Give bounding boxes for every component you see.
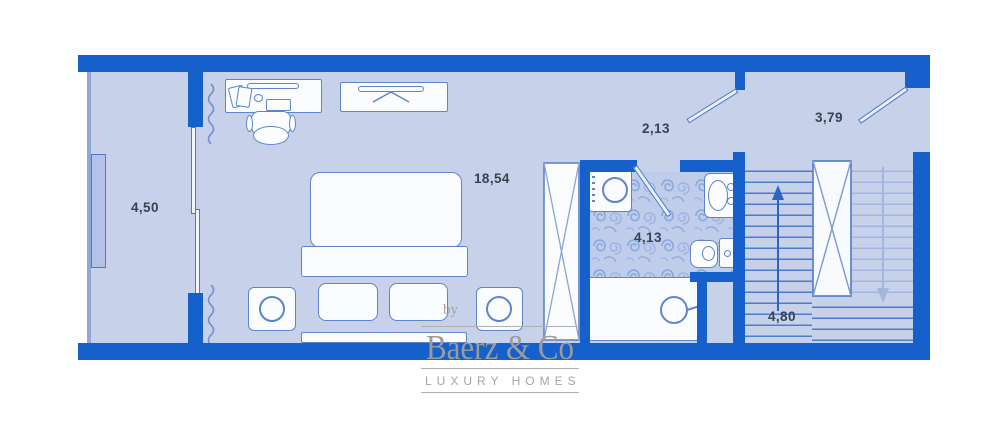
landing-area-label: 3,79	[815, 110, 843, 125]
washing-machine-controls	[592, 176, 595, 204]
washing-machine-door	[602, 177, 628, 203]
desk-chair-seat	[253, 126, 289, 145]
wall-hallway-stub	[735, 72, 745, 90]
stairs-lower-steps	[812, 297, 913, 343]
bed-pillow	[318, 283, 378, 321]
balcony-window	[91, 154, 106, 268]
sliding-door-panel	[191, 127, 196, 214]
curtain-squiggle-icon	[206, 84, 216, 144]
wall-shower-nook	[697, 272, 707, 343]
watermark-tagline: LUXURY HOMES	[421, 371, 579, 390]
wall-bathroom-top-right	[680, 160, 735, 172]
staircase-area-label: 4,80	[768, 309, 796, 324]
wall-right	[913, 152, 930, 343]
wall-bathroom-left	[580, 160, 590, 343]
hallway-area-label: 2,13	[642, 121, 670, 136]
desk-chair-armrest	[246, 115, 253, 132]
toilet-seat	[702, 246, 715, 261]
wall-bathroom-top-left	[580, 160, 637, 172]
entrance-opening-floor	[913, 88, 930, 152]
bed-fold-band	[301, 246, 468, 277]
toilet-button	[724, 250, 731, 257]
sliding-door-panel	[195, 209, 200, 294]
watermark-rule	[421, 392, 579, 393]
desk-chair-armrest	[289, 115, 296, 132]
shower-head-icon	[660, 296, 688, 324]
watermark-brand: Baerz & Co	[421, 327, 579, 369]
stairs-down-arrow-icon	[874, 167, 892, 303]
bedroom-area-label: 18,54	[474, 171, 510, 186]
watermark-by: by	[421, 302, 579, 324]
stair-void-shaft	[812, 160, 852, 297]
bathroom-area-label: 4,13	[634, 230, 662, 245]
stairs-up-arrow-icon	[769, 185, 787, 315]
sink-basin	[708, 180, 728, 211]
wall-entrance-stub	[905, 72, 930, 88]
wall-top	[78, 55, 930, 72]
watermark: by Baerz & Co LUXURY HOMES	[421, 302, 579, 395]
bed-duvet	[310, 172, 462, 248]
wall-balcony-stub-bottom	[188, 293, 203, 343]
wall-bathroom-stairs-divider	[733, 152, 745, 343]
balcony-area-label: 4,50	[131, 200, 159, 215]
desk-mouse	[254, 94, 263, 102]
floor-plan: 4,50 18,54 2,13 3,79 4,13 4,80 by Baerz …	[0, 0, 1000, 425]
desk-monitor	[247, 83, 299, 89]
desk-keyboard	[266, 99, 291, 111]
curtain-squiggle-icon	[206, 285, 216, 345]
tv-stand-icon	[358, 86, 424, 106]
wall-balcony-stub-top	[188, 72, 203, 127]
nightstand-lamp	[259, 296, 285, 322]
